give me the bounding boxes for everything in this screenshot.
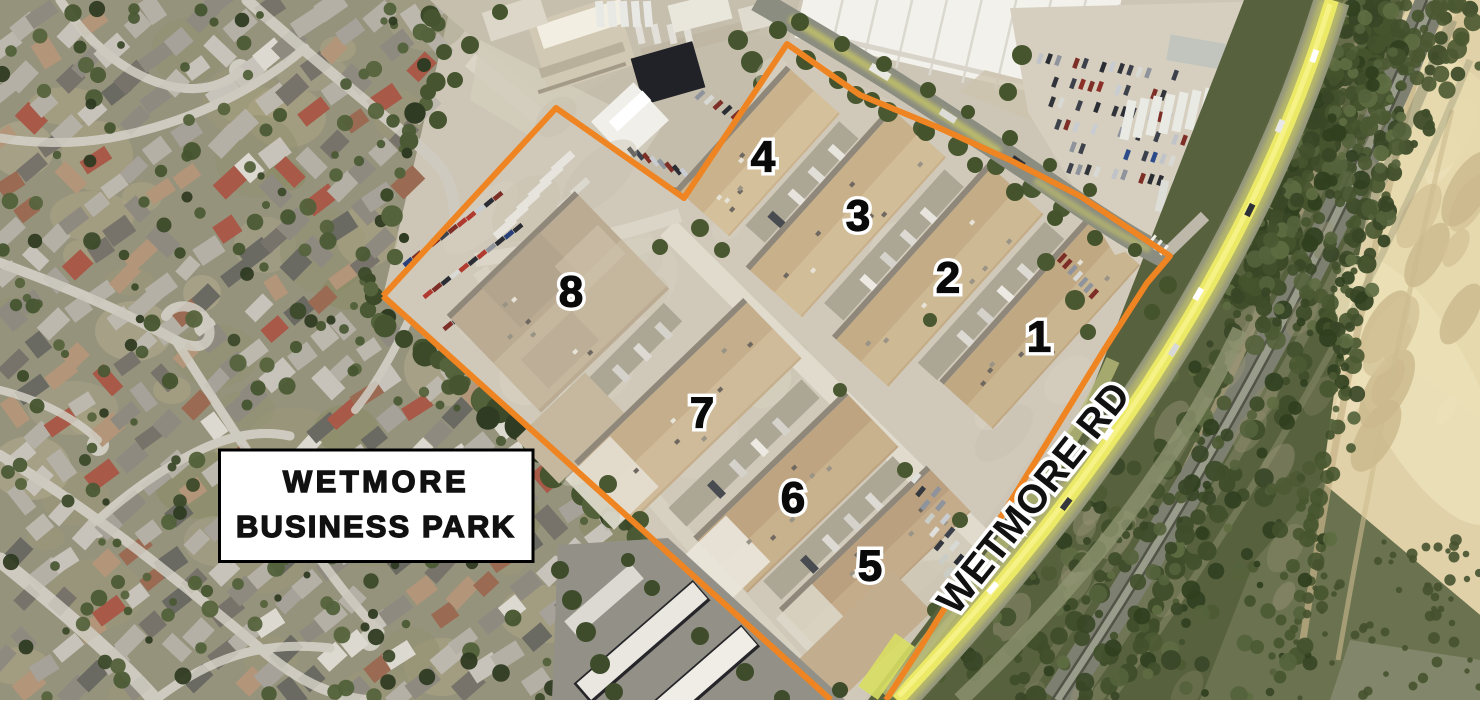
svg-text:5: 5 [858,542,882,591]
svg-text:1: 1 [1027,313,1051,362]
svg-text:8: 8 [559,268,583,317]
svg-text:BUSINESS PARK: BUSINESS PARK [236,509,516,544]
svg-text:7: 7 [690,389,714,438]
svg-text:4: 4 [751,133,776,182]
svg-text:6: 6 [781,474,805,523]
svg-text:WETMORE: WETMORE [283,464,469,499]
svg-text:2: 2 [936,254,960,303]
svg-text:3: 3 [846,192,870,241]
